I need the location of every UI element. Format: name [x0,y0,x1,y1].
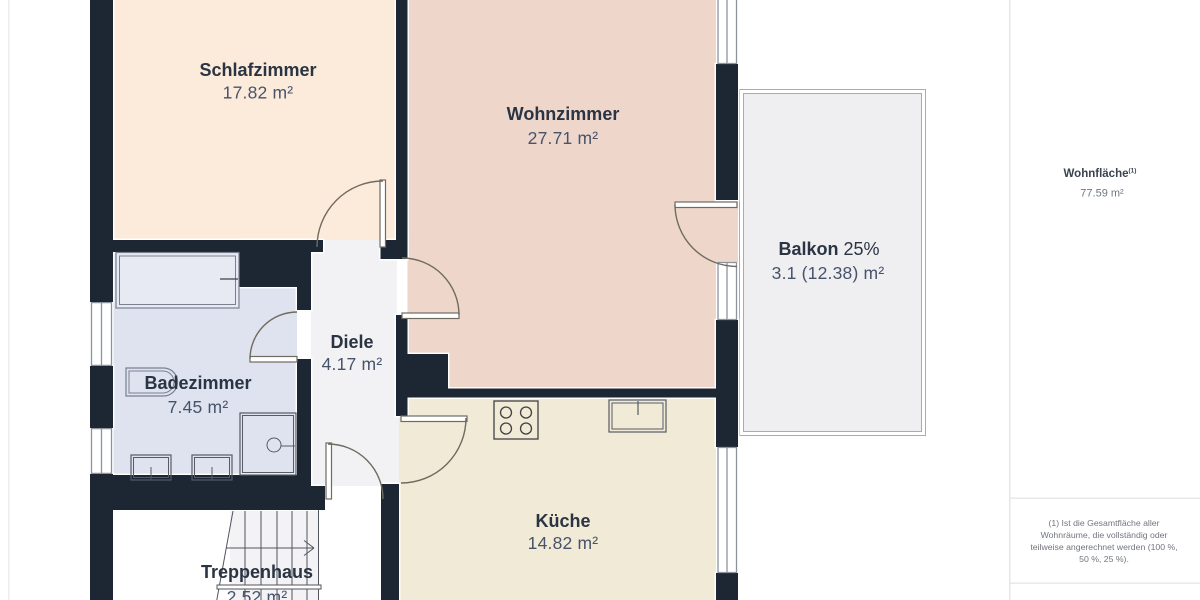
svg-text:17.82 m²: 17.82 m² [223,83,294,103]
svg-text:Schlafzimmer: Schlafzimmer [199,60,316,80]
svg-text:teilweise angerechnet werden (: teilweise angerechnet werden (100 %, [1030,542,1177,552]
svg-text:Badezimmer: Badezimmer [144,373,251,393]
svg-text:Balkon 25%: Balkon 25% [778,239,879,259]
svg-text:(1) Ist die Gesamtfläche aller: (1) Ist die Gesamtfläche aller [1048,518,1159,528]
svg-text:3.1 (12.38) m²: 3.1 (12.38) m² [772,263,885,283]
svg-text:4.17 m²: 4.17 m² [322,354,383,374]
svg-text:Diele: Diele [330,332,373,352]
svg-text:Wohnräume, die vollständig ode: Wohnräume, die vollständig oder [1041,530,1168,540]
svg-text:Küche: Küche [535,511,590,531]
svg-text:7.45 m²: 7.45 m² [168,397,229,417]
svg-text:50 %, 25 %).: 50 %, 25 %). [1079,554,1129,564]
svg-text:Wohnzimmer: Wohnzimmer [507,104,620,124]
svg-text:2.52 m²: 2.52 m² [227,587,288,600]
svg-text:14.82 m²: 14.82 m² [528,533,599,553]
svg-text:Wohnfläche(1): Wohnfläche(1) [1064,168,1137,181]
svg-text:Treppenhaus: Treppenhaus [201,562,313,582]
svg-text:77.59 m²: 77.59 m² [1080,188,1124,200]
svg-text:27.71 m²: 27.71 m² [528,128,599,148]
